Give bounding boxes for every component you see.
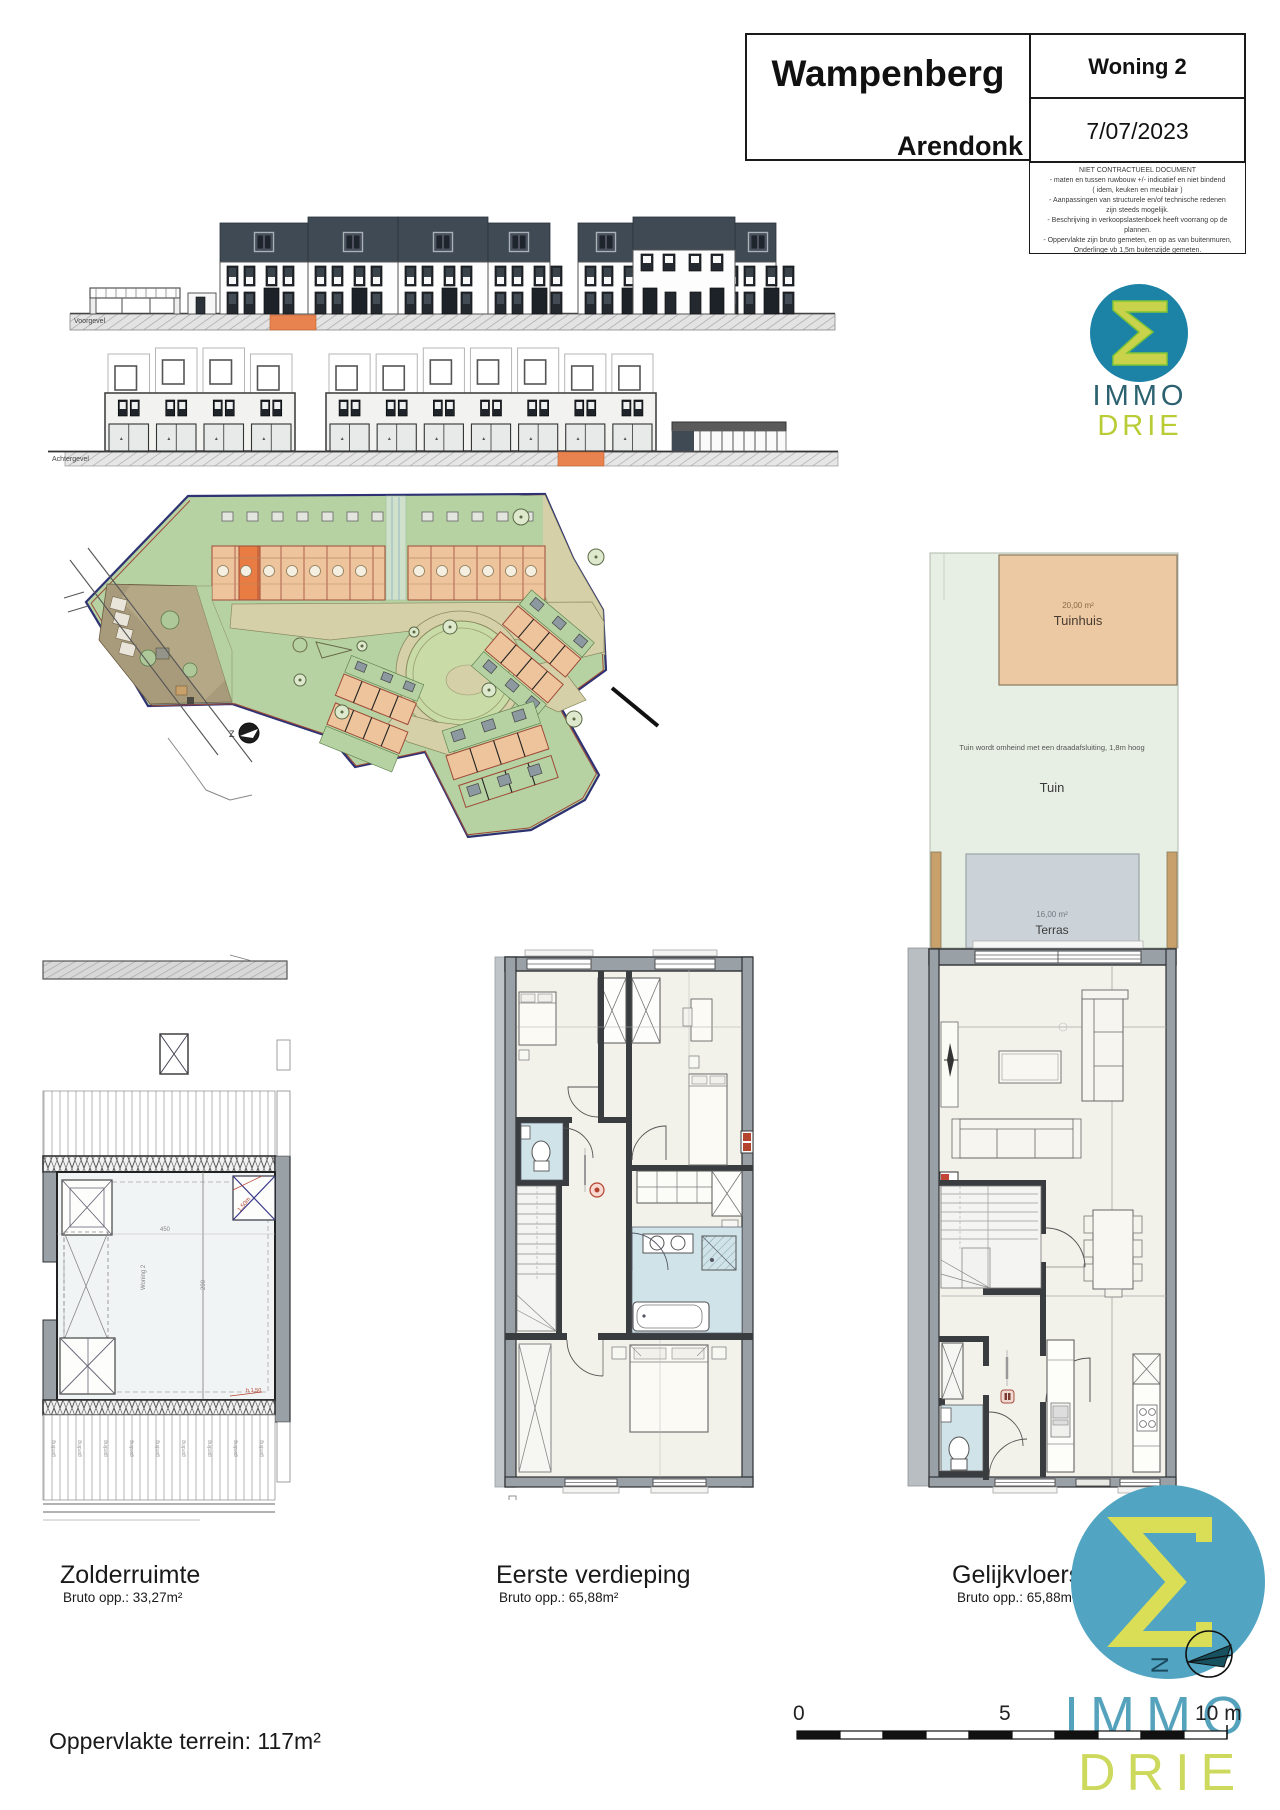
svg-text:▲: ▲ xyxy=(481,436,486,442)
svg-text:▲: ▲ xyxy=(623,436,628,442)
svg-text:0: 0 xyxy=(793,1702,805,1725)
svg-text:10 m: 10 m xyxy=(1195,1702,1240,1725)
svg-text:Terras: Terras xyxy=(1035,923,1068,937)
svg-text:Woning 2: Woning 2 xyxy=(141,1264,147,1290)
svg-text:450: 450 xyxy=(160,1227,171,1233)
svg-text:Tuin: Tuin xyxy=(1040,780,1065,795)
svg-text:Voorgevel: Voorgevel xyxy=(74,318,106,325)
svg-text:▲: ▲ xyxy=(340,436,345,442)
svg-text:▲: ▲ xyxy=(528,436,533,442)
svg-text:5: 5 xyxy=(999,1702,1011,1725)
svg-text:▲: ▲ xyxy=(576,436,581,442)
svg-text:gording: gording xyxy=(129,1440,135,1457)
svg-text:▲: ▲ xyxy=(261,436,266,442)
svg-text:h,1,50: h,1,50 xyxy=(246,1388,261,1394)
svg-text:20,00 m²: 20,00 m² xyxy=(1062,601,1094,610)
svg-text:gording: gording xyxy=(259,1440,265,1457)
svg-text:Tuinhuis: Tuinhuis xyxy=(1054,613,1103,628)
svg-text:▲: ▲ xyxy=(387,436,392,442)
svg-text:Tuin wordt omheind met een dra: Tuin wordt omheind met een draadafsluiti… xyxy=(959,743,1144,752)
svg-text:gording: gording xyxy=(155,1440,161,1457)
svg-text:gording: gording xyxy=(51,1440,57,1457)
svg-text:▲: ▲ xyxy=(434,436,439,442)
svg-text:▲: ▲ xyxy=(166,436,171,442)
svg-text:▲: ▲ xyxy=(214,436,219,442)
svg-text:▲: ▲ xyxy=(119,436,124,442)
svg-text:290: 290 xyxy=(201,1279,207,1290)
svg-text:N: N xyxy=(1147,1656,1174,1673)
svg-text:gording: gording xyxy=(181,1440,187,1457)
svg-text:gording: gording xyxy=(233,1440,239,1457)
svg-text:16,00 m²: 16,00 m² xyxy=(1036,910,1068,919)
svg-text:Achtergevel: Achtergevel xyxy=(52,456,89,463)
svg-text:Z: Z xyxy=(229,729,235,739)
svg-text:gording: gording xyxy=(207,1440,213,1457)
svg-text:gording: gording xyxy=(103,1440,109,1457)
svg-text:gording: gording xyxy=(77,1440,83,1457)
